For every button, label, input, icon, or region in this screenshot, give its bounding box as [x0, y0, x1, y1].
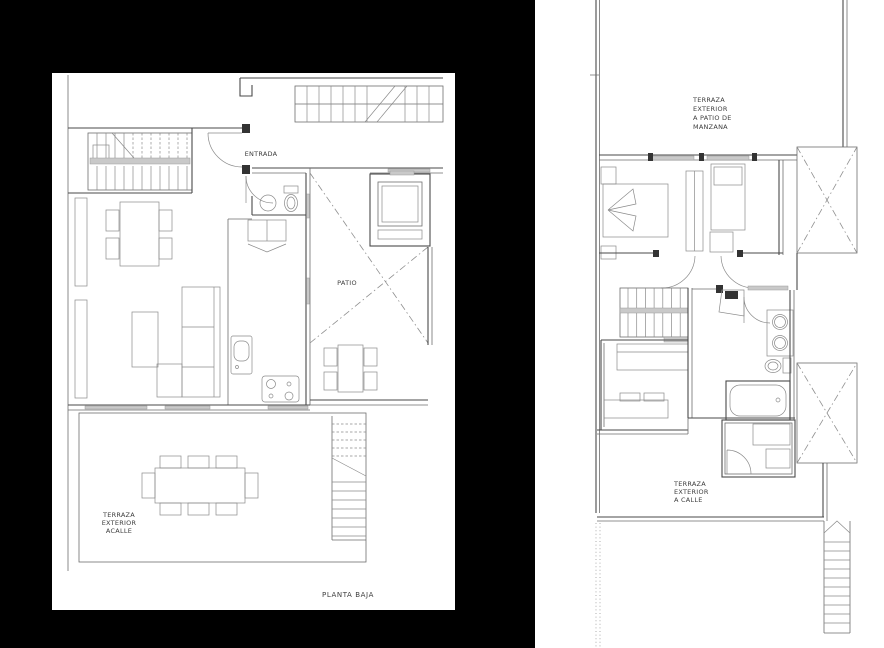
floorplan-canvas: ENTRADA	[0, 0, 884, 648]
svg-text:EXTERIOR: EXTERIOR	[674, 488, 709, 496]
terraza-calle-label-left: TERRAZA EXTERIOR ACALLE	[102, 511, 137, 535]
svg-text:TERRAZA: TERRAZA	[673, 480, 706, 488]
svg-text:MANZANA: MANZANA	[693, 123, 728, 131]
south-wall-windows	[68, 405, 310, 410]
patio-label: PATIO	[337, 279, 357, 287]
svg-text:TERRAZA: TERRAZA	[692, 96, 725, 104]
svg-text:A CALLE: A CALLE	[674, 496, 703, 504]
svg-text:EXTERIOR: EXTERIOR	[693, 105, 728, 113]
entrada-label: ENTRADA	[245, 150, 278, 158]
plan-caption: PLANTA BAJA	[322, 591, 374, 599]
left-plan-ground-floor: ENTRADA	[52, 73, 455, 610]
svg-text:TERRAZA: TERRAZA	[102, 511, 135, 519]
right-plan-upper-floor: TERRAZA EXTERIOR A PATIO DE MANZANA	[535, 0, 884, 648]
svg-text:A PATIO DE: A PATIO DE	[693, 114, 732, 122]
floorplan-drawing: ENTRADA	[0, 0, 884, 648]
svg-text:ACALLE: ACALLE	[106, 527, 132, 535]
svg-text:EXTERIOR: EXTERIOR	[102, 519, 137, 527]
